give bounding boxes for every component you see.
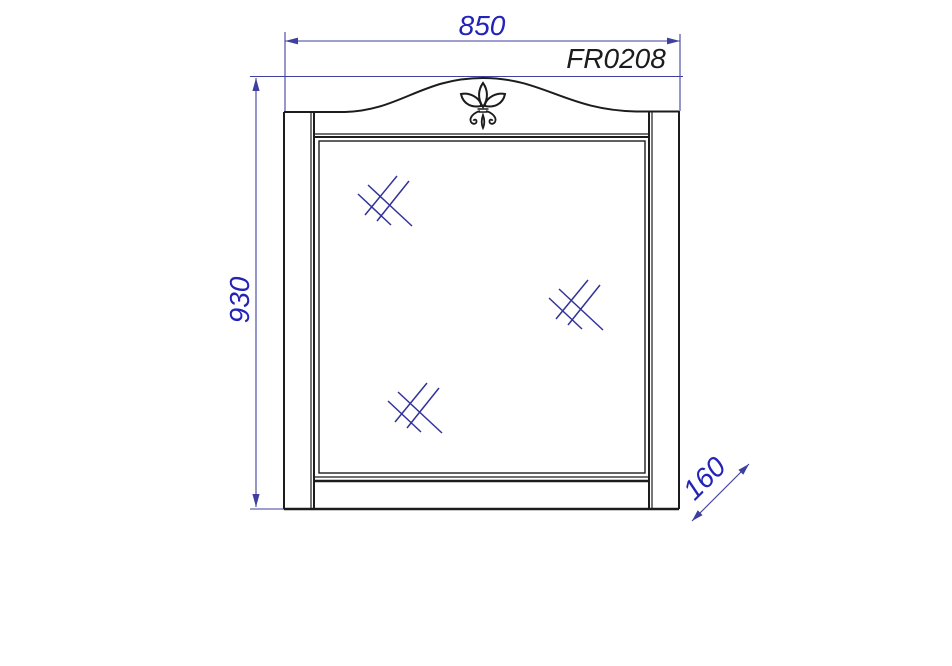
arrowhead-left-icon	[285, 38, 298, 45]
left-pilaster	[284, 112, 345, 509]
glass-hatch-mark-icon	[358, 176, 412, 226]
glass-hatch-mark-icon	[549, 280, 603, 330]
depth-dimension-label: 160	[677, 451, 732, 506]
arrowhead-up-icon	[252, 78, 259, 91]
width-dimension-label: 850	[459, 10, 506, 41]
arrowhead-right-icon	[667, 38, 680, 45]
bottom-rail	[284, 477, 679, 509]
glass-hatch-mark-icon	[388, 383, 442, 433]
drawing-sheet: 850 930 160	[0, 0, 952, 666]
right-pilaster	[638, 111, 679, 509]
arrowhead-down-icon	[252, 494, 259, 507]
fleur-de-lis-icon	[461, 83, 505, 128]
mirror-glass	[319, 141, 645, 473]
dimension-depth: 160	[677, 451, 749, 521]
top-rail	[314, 134, 649, 137]
height-dimension-label: 930	[224, 276, 255, 323]
mirror-frame	[284, 78, 679, 509]
model-number: FR0208	[566, 43, 666, 74]
mirror-dimension-drawing: 850 930 160	[0, 0, 952, 666]
glass-hatch-marks	[358, 176, 603, 433]
